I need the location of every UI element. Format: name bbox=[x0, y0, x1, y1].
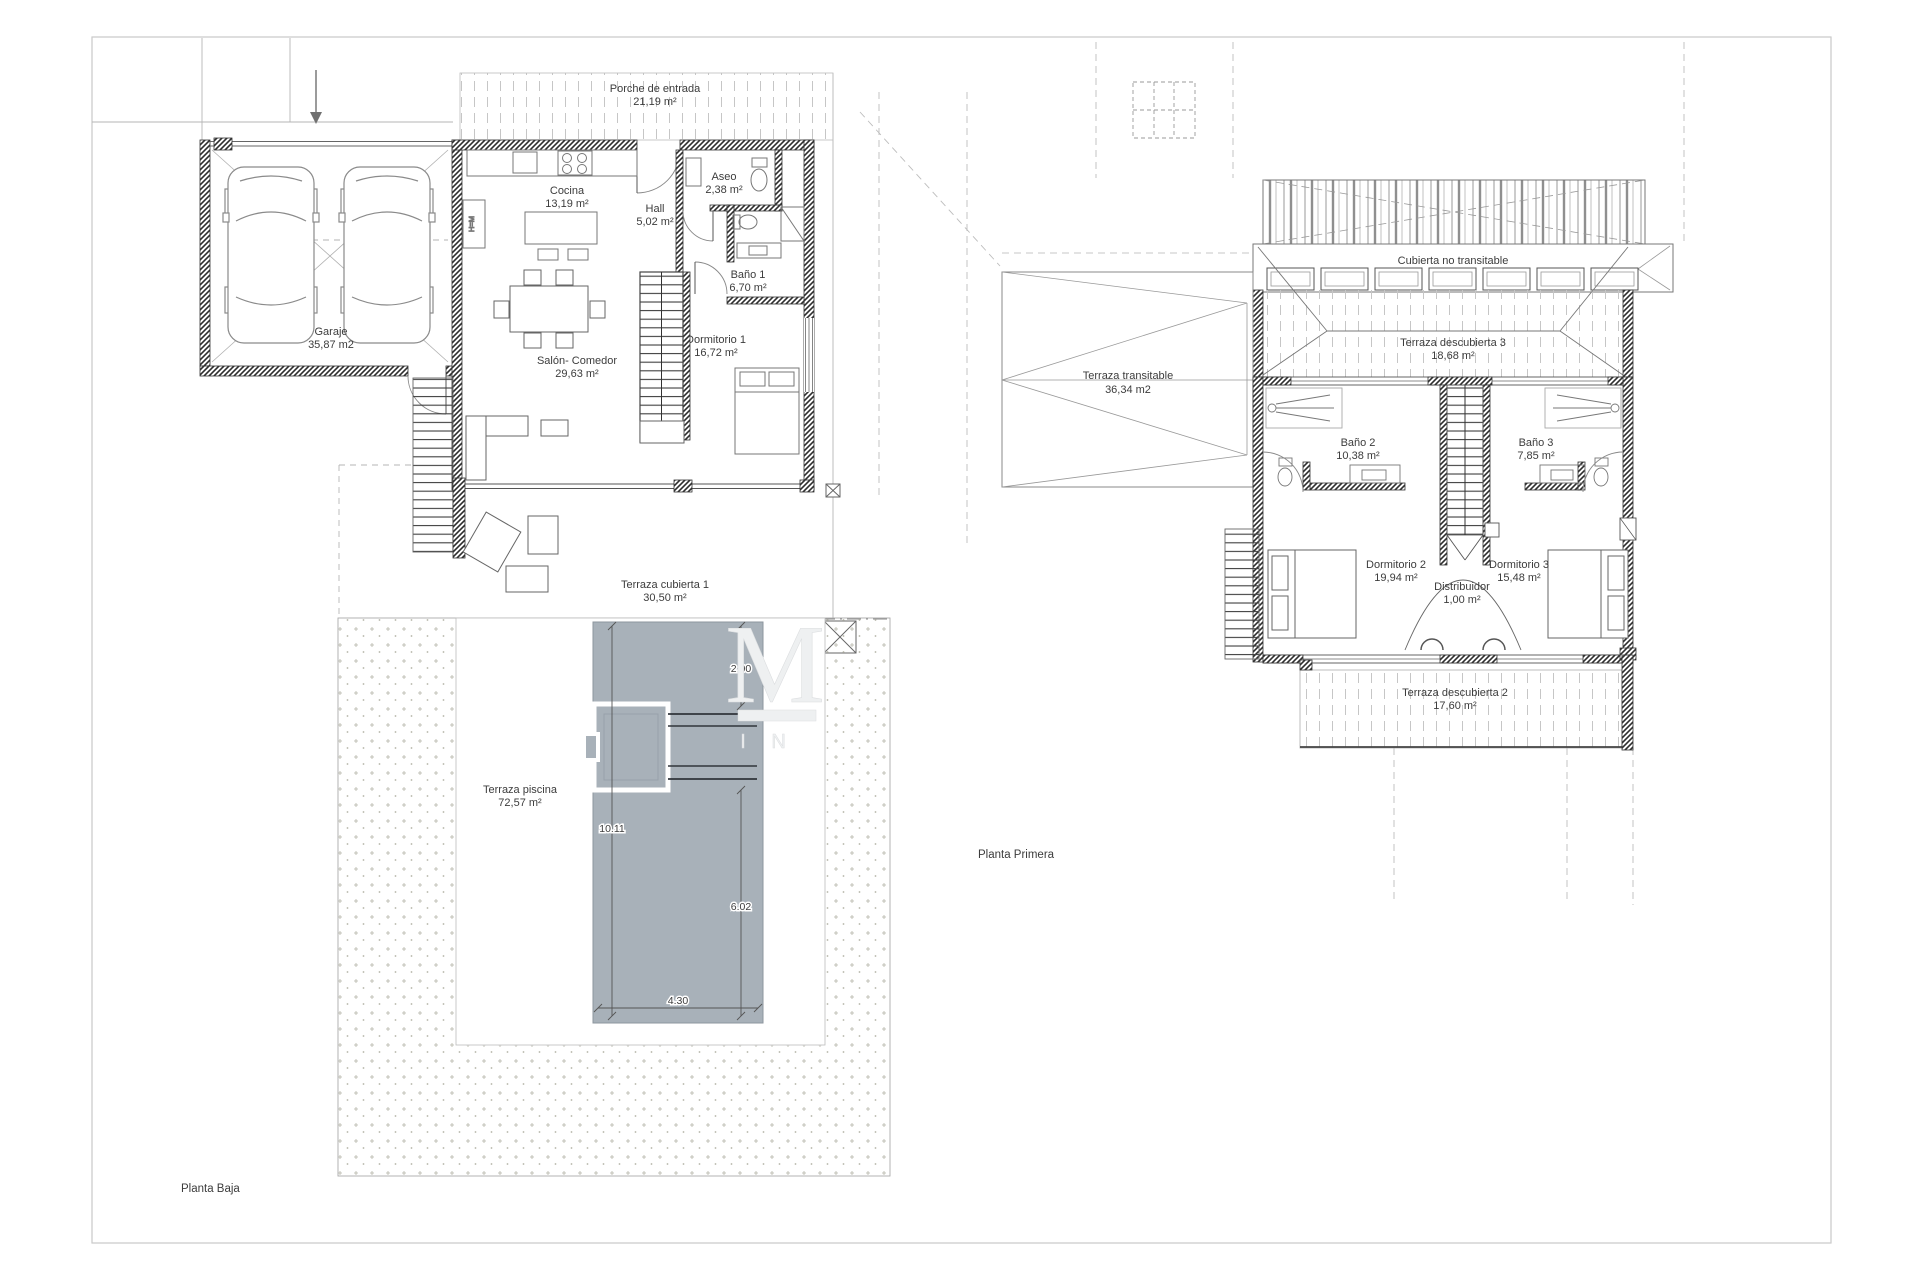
porche-de-entrada: Porche de entrada 21,19 m² bbox=[460, 73, 833, 140]
room-area-hall: 5,02 m² bbox=[636, 216, 674, 228]
floor-plan-canvas: Porche de entrada 21,19 m² bbox=[0, 0, 1920, 1280]
room-label-terraza2: Terraza descubierta 2 bbox=[1402, 687, 1508, 699]
room-area-terraza2: 17,60 m² bbox=[1433, 700, 1477, 712]
chimney-outline bbox=[1133, 82, 1195, 138]
projection-lines bbox=[860, 42, 1684, 905]
watermark-monogram: M bbox=[725, 603, 825, 727]
car-symbol bbox=[339, 167, 435, 343]
room-label-hall: Hall bbox=[646, 203, 665, 215]
terraza-descubierta2: Terraza descubierta 2 17,60 m² bbox=[1300, 655, 1633, 750]
room-area-distribuidor: 1,00 m² bbox=[1443, 594, 1481, 606]
car-symbol bbox=[223, 167, 319, 343]
roof-plank-band bbox=[1263, 180, 1645, 244]
skylight-row bbox=[1267, 268, 1638, 290]
hob-symbol bbox=[558, 151, 592, 175]
sink-symbol bbox=[513, 152, 537, 173]
room-area-transitable: 36,34 m2 bbox=[1105, 384, 1151, 396]
room-label-dormitorio2: Dormitorio 2 bbox=[1366, 559, 1426, 571]
room-label-dormitorio3: Dormitorio 3 bbox=[1489, 559, 1549, 571]
bed-symbol bbox=[735, 368, 799, 454]
room-area-dormitorio3: 15,48 m² bbox=[1497, 572, 1541, 584]
plan-sheet: Porche de entrada 21,19 m² bbox=[0, 0, 1920, 1280]
terraza-transitable: Terraza transitable 36,34 m2 bbox=[1002, 253, 1253, 487]
room-area-terraza-piscina: 72,57 m² bbox=[498, 797, 542, 809]
upper-staircase bbox=[1440, 385, 1499, 565]
upper-exter-stair bbox=[1225, 529, 1259, 659]
room-area-dormitorio2: 19,94 m² bbox=[1374, 572, 1418, 584]
room-label-terraza-cubierta1: Terraza cubierta 1 bbox=[621, 579, 709, 591]
room-label-bano2: Baño 2 bbox=[1341, 437, 1376, 449]
room-label-cocina: Cocina bbox=[550, 185, 585, 197]
washbasin-symbol bbox=[686, 158, 701, 186]
room-label-dormitorio1: Dormitorio 1 bbox=[686, 334, 746, 346]
dim-width: 4.30 bbox=[668, 995, 689, 1007]
room-area-bano2: 10,38 m² bbox=[1336, 450, 1380, 462]
plan-title-planta-baja: Planta Baja bbox=[181, 1183, 240, 1195]
plan-title-planta-primera: Planta Primera bbox=[978, 849, 1055, 861]
bano1-room: Baño 1 6,70 m² bbox=[695, 205, 804, 304]
room-area-garaje: 35,87 m2 bbox=[308, 339, 354, 351]
room-area-aseo: 2,38 m² bbox=[705, 184, 743, 196]
room-label-garaje: Garaje bbox=[314, 326, 347, 338]
room-label-aseo: Aseo bbox=[711, 171, 736, 183]
bed-symbol bbox=[1268, 550, 1356, 638]
room-area-terraza3: 18,68 m² bbox=[1431, 350, 1475, 362]
cocina-room: H=M Cocina 13,19 m² bbox=[463, 150, 637, 260]
room-label-terraza3: Terraza descubierta 3 bbox=[1400, 337, 1506, 349]
closet-label: H=M bbox=[467, 216, 476, 232]
dim-main-length: 6.02 bbox=[731, 901, 752, 913]
toilet-symbol bbox=[751, 158, 767, 191]
room-area-porche: 21,19 m² bbox=[633, 96, 677, 108]
entrance-arrow-icon bbox=[310, 70, 322, 124]
room-label-porche: Porche de entrada bbox=[610, 83, 701, 95]
room-area-salon: 29,63 m² bbox=[555, 368, 599, 380]
bedroom-block: Baño 2 10,38 m² Baño 3 7,85 m² Dormitori… bbox=[1253, 377, 1636, 663]
room-label-transitable: Terraza transitable bbox=[1083, 370, 1174, 382]
room-label-bano3: Baño 3 bbox=[1519, 437, 1554, 449]
sofa-symbol bbox=[466, 416, 684, 480]
hall-room: Hall 5,02 m² bbox=[636, 150, 683, 272]
room-area-cocina: 13,19 m² bbox=[545, 198, 589, 210]
room-label-cubierta: Cubierta no transitable bbox=[1398, 255, 1509, 267]
planta-primera-plan: Cubierta no transitable Terraza descubie… bbox=[860, 42, 1684, 905]
room-area-terraza-cubierta1: 30,50 m² bbox=[643, 592, 687, 604]
room-label-salon: Salón- Comedor bbox=[537, 355, 617, 367]
room-label-terraza-piscina: Terraza piscina bbox=[483, 784, 558, 796]
room-area-dormitorio1: 16,72 m² bbox=[694, 347, 738, 359]
bed-symbol bbox=[1548, 550, 1628, 638]
room-label-bano1: Baño 1 bbox=[731, 269, 766, 281]
dormitorio1-room: Dormitorio 1 16,72 m² bbox=[686, 334, 799, 454]
dining-table-symbol bbox=[494, 270, 605, 348]
kitchen-island-symbol bbox=[525, 212, 597, 244]
room-area-bano3: 7,85 m² bbox=[1517, 450, 1555, 462]
dim-length: 10.11 bbox=[599, 823, 625, 835]
planta-baja-plan: Porche de entrada 21,19 m² bbox=[92, 38, 890, 1195]
garaje-room: Garaje 35,87 m2 bbox=[200, 138, 456, 414]
salon-room: Salón- Comedor 29,63 m² bbox=[466, 270, 690, 480]
room-label-distribuidor: Distribuidor bbox=[1434, 581, 1490, 593]
room-area-bano1: 6,70 m² bbox=[729, 282, 767, 294]
watermark-subtext: I N bbox=[740, 731, 796, 753]
